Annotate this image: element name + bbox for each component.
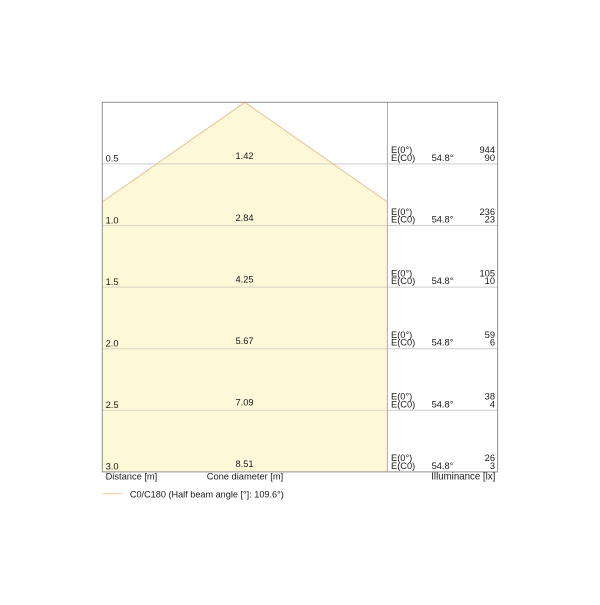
svg-text:E(C0): E(C0) — [391, 399, 415, 409]
svg-text:5.67: 5.67 — [235, 336, 253, 346]
svg-text:E(C0): E(C0) — [391, 215, 415, 225]
svg-text:3: 3 — [490, 461, 495, 471]
svg-text:1.5: 1.5 — [106, 277, 119, 287]
svg-text:23: 23 — [485, 215, 495, 225]
svg-text:4: 4 — [490, 399, 495, 409]
svg-text:Cone diameter [m]: Cone diameter [m] — [207, 472, 283, 482]
svg-text:6: 6 — [490, 338, 495, 348]
svg-text:3.0: 3.0 — [106, 462, 119, 472]
svg-text:54.8°: 54.8° — [432, 338, 454, 348]
svg-text:8.51: 8.51 — [235, 459, 253, 469]
svg-text:7.09: 7.09 — [235, 398, 253, 408]
svg-text:E(C0): E(C0) — [391, 153, 415, 163]
svg-text:4.25: 4.25 — [235, 274, 253, 284]
svg-text:E(C0): E(C0) — [391, 461, 415, 471]
svg-text:2.5: 2.5 — [106, 400, 119, 410]
svg-text:54.8°: 54.8° — [432, 153, 454, 163]
svg-text:90: 90 — [485, 153, 495, 163]
svg-text:2.84: 2.84 — [235, 213, 253, 223]
svg-text:Distance [m]: Distance [m] — [106, 472, 158, 482]
svg-text:54.8°: 54.8° — [432, 399, 454, 409]
svg-text:E(C0): E(C0) — [391, 338, 415, 348]
svg-text:1.0: 1.0 — [106, 215, 119, 225]
svg-text:54.8°: 54.8° — [432, 215, 454, 225]
svg-text:C0/C180 (Half beam angle [°]:: C0/C180 (Half beam angle [°]: 109.6°) — [130, 489, 284, 499]
svg-text:1.42: 1.42 — [235, 151, 253, 161]
svg-text:54.8°: 54.8° — [432, 276, 454, 286]
svg-text:10: 10 — [485, 276, 495, 286]
svg-text:0.5: 0.5 — [106, 154, 119, 164]
svg-text:2.0: 2.0 — [106, 339, 119, 349]
svg-text:Illuminance [lx]: Illuminance [lx] — [431, 472, 495, 483]
svg-text:E(C0): E(C0) — [391, 276, 415, 286]
svg-text:54.8°: 54.8° — [432, 461, 454, 471]
